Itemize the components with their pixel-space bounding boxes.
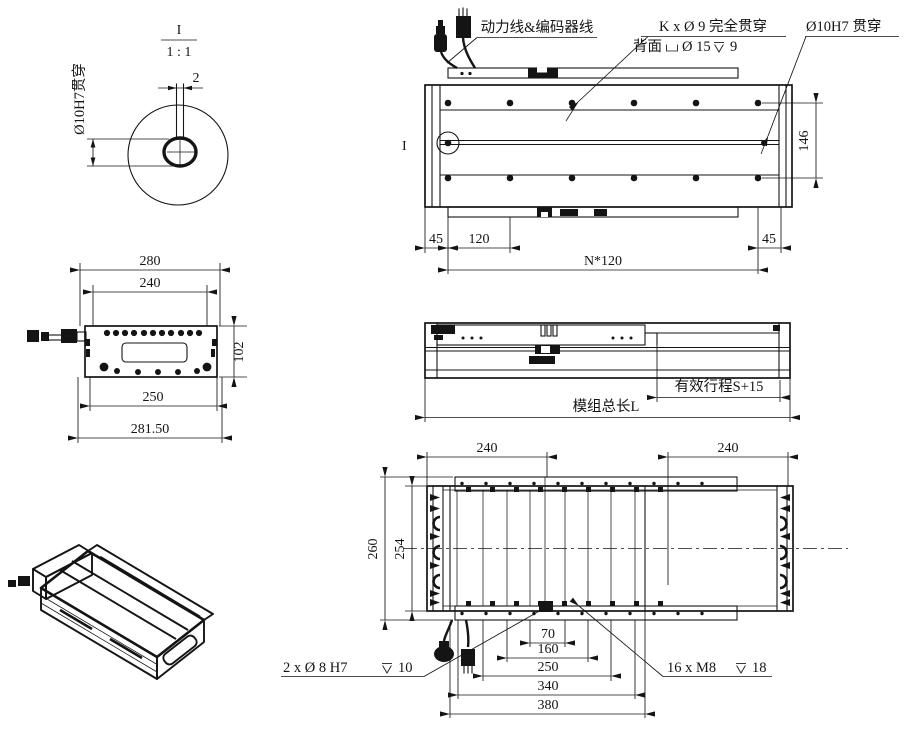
dim-146: 146 <box>797 131 812 152</box>
depth-icon <box>736 664 746 674</box>
motor-connector-icon <box>27 329 86 343</box>
dim-250-bottom: 250 <box>538 660 559 675</box>
dim-160: 160 <box>538 642 559 657</box>
detail-marker-label: I <box>177 23 182 38</box>
detail-boundary-circle <box>128 105 228 205</box>
dim-240-right: 240 <box>718 441 739 456</box>
dowel-callout-depth: 10 <box>398 660 413 676</box>
hole-callout-cb-depth: 9 <box>730 39 737 55</box>
dim-70: 70 <box>541 627 555 642</box>
drawing-canvas: I 1 : 1 2 Ø10H7贯穿 <box>0 0 905 740</box>
depth-icon <box>714 43 724 53</box>
screw-callout-text: 16 x M8 <box>667 660 716 676</box>
top-view-detail-marker: I <box>402 139 407 154</box>
dim-340: 340 <box>538 679 559 694</box>
bottom-view: 240 240 260 254 70 160 250 340 380 2 x Ø… <box>281 441 848 718</box>
counterbore-icon <box>667 45 678 52</box>
side-view: 有效行程S+15 模组总长L <box>425 323 790 422</box>
hole-callout-cb-dia: Ø 15 <box>682 39 711 55</box>
mounting-hole-row-top <box>445 100 762 107</box>
bottom-strip-features <box>537 207 607 217</box>
front-bottom-hole-row <box>100 363 212 375</box>
hole-callout-line1: K x Ø 9 完全贯穿 <box>659 17 767 35</box>
mount-plate-bottom <box>455 606 737 620</box>
corner-clamps <box>85 339 217 357</box>
front-top-hole-row <box>104 330 202 336</box>
isometric-view <box>8 545 213 679</box>
dim-120: 120 <box>469 232 490 247</box>
teeth-left <box>430 494 440 606</box>
bottom-encoder-connector-icon <box>461 620 475 673</box>
front-view: 280 240 250 281.50 102 <box>27 254 247 443</box>
engineering-drawing: I 1 : 1 2 Ø10H7贯穿 <box>0 0 905 740</box>
dim-slot-width: 2 <box>193 71 200 86</box>
iso-connector-icon <box>8 576 30 587</box>
base-rail-top-strip <box>448 68 738 78</box>
side-connector-icon <box>431 325 455 340</box>
dim-380: 380 <box>538 698 559 713</box>
front-window <box>122 343 187 362</box>
detail-hole-label: Ø10H7贯穿 <box>71 63 88 135</box>
sensor-latch-icon <box>528 68 558 79</box>
dim-240-left: 240 <box>477 441 498 456</box>
cable-label: 动力线&编码器线 <box>481 19 594 36</box>
mounting-hole-row-bottom <box>445 175 762 182</box>
mount-plate-top <box>455 477 737 491</box>
dim-45-right: 45 <box>762 232 776 247</box>
detail-pin-hole <box>445 140 452 147</box>
plate-hole-dots-top <box>460 482 703 485</box>
table-plate <box>425 85 792 207</box>
dim-254: 254 <box>393 539 408 560</box>
screw-marks-bottom <box>466 601 663 606</box>
teeth-right <box>780 494 790 606</box>
top-view: 动力线&编码器线 K x Ø 9 完全贯穿 背面 Ø 15 9 Ø10H7 贯穿 <box>402 8 899 274</box>
pin-hole-right <box>761 140 767 146</box>
dim-281-50: 281.50 <box>131 422 170 437</box>
detail-scale-label: 1 : 1 <box>167 45 192 60</box>
hole-columns <box>457 477 635 606</box>
power-connector-icon <box>434 20 457 68</box>
label-stroke: 有效行程S+15 <box>675 378 764 395</box>
base-rail-bottom-strip <box>448 207 738 217</box>
dim-250-front: 250 <box>143 390 164 405</box>
encoder-connector-icon <box>456 8 475 68</box>
dim-45-left: 45 <box>429 232 443 247</box>
plate-hole-dots-bottom <box>460 612 703 615</box>
hole-callout-back: 背面 <box>633 38 662 55</box>
pin-callout: Ø10H7 贯穿 <box>806 18 881 35</box>
bottom-power-connector-icon <box>434 620 454 662</box>
detail-view: I 1 : 1 2 Ø10H7贯穿 <box>71 23 228 205</box>
dim-n120: N*120 <box>584 254 622 269</box>
label-total-length: 模组总长L <box>573 398 640 415</box>
dim-260: 260 <box>366 539 381 560</box>
dim-280: 280 <box>140 254 161 269</box>
side-dots <box>462 337 633 340</box>
dowel-callout-text: 2 x Ø 8 H7 <box>283 660 347 676</box>
dim-102: 102 <box>232 342 247 363</box>
depth-icon <box>382 664 392 674</box>
vent-slots-icon <box>541 325 557 336</box>
screw-callout-depth: 18 <box>752 660 767 676</box>
dim-240-front: 240 <box>140 276 161 291</box>
